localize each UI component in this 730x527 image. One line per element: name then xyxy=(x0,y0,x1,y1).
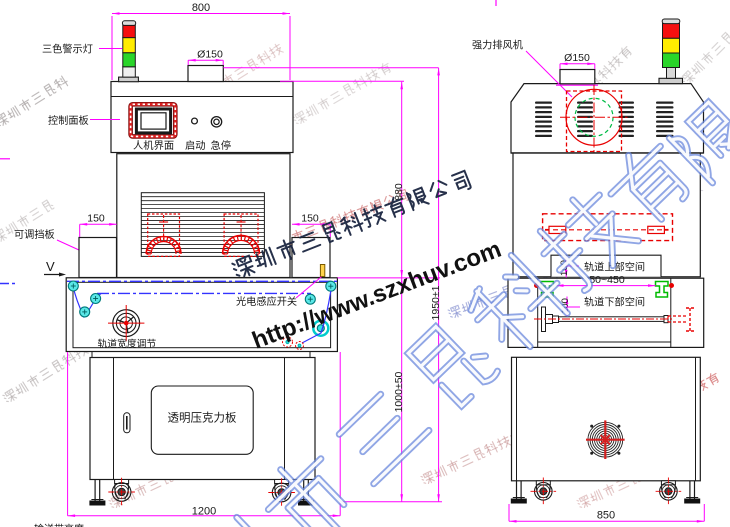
svg-text:强力排风机: 强力排风机 xyxy=(472,39,523,52)
svg-text:150: 150 xyxy=(301,213,319,225)
svg-text:800: 800 xyxy=(192,2,210,14)
svg-text:轨道下部空间: 轨道下部空间 xyxy=(584,296,645,309)
svg-text:880: 880 xyxy=(393,183,405,201)
svg-text:启动: 启动 xyxy=(185,139,206,152)
svg-text:急停: 急停 xyxy=(211,139,232,152)
svg-text:1950±1: 1950±1 xyxy=(430,285,442,320)
svg-text:轨道宽度调节: 轨道宽度调节 xyxy=(98,337,157,350)
svg-text:V: V xyxy=(46,259,55,274)
svg-text:人机界面: 人机界面 xyxy=(133,139,174,152)
svg-text:可调挡板: 可调挡板 xyxy=(14,228,55,241)
svg-text:三色警示灯: 三色警示灯 xyxy=(42,43,93,56)
svg-text:50~450: 50~450 xyxy=(589,274,624,286)
svg-text:850: 850 xyxy=(597,510,615,522)
svg-text:150: 150 xyxy=(87,213,105,225)
svg-text:1000±50: 1000±50 xyxy=(393,371,405,412)
svg-text:Ø150: Ø150 xyxy=(197,49,223,61)
svg-text:Ø150: Ø150 xyxy=(564,52,590,64)
svg-text:控制面板: 控制面板 xyxy=(48,114,89,127)
svg-text:透明压克力板: 透明压克力板 xyxy=(168,411,237,425)
svg-text:光电感应开关: 光电感应开关 xyxy=(236,295,297,308)
